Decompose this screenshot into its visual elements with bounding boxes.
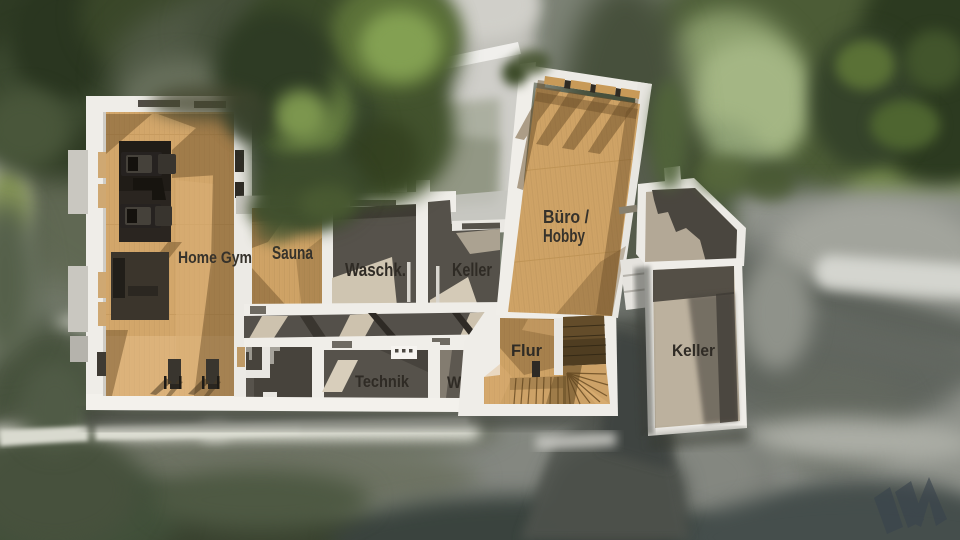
svg-text:Technik: Technik [355,372,409,391]
svg-text:Büro /: Büro / [543,207,589,227]
svg-text:Keller: Keller [452,260,492,280]
svg-text:Flur: Flur [511,341,542,360]
svg-text:Keller: Keller [672,341,715,360]
svg-text:Hobby: Hobby [543,226,585,246]
svg-text:Waschk.: Waschk. [345,260,406,280]
svg-text:Home Gym: Home Gym [178,248,252,267]
svg-text:Sauna: Sauna [272,243,314,263]
